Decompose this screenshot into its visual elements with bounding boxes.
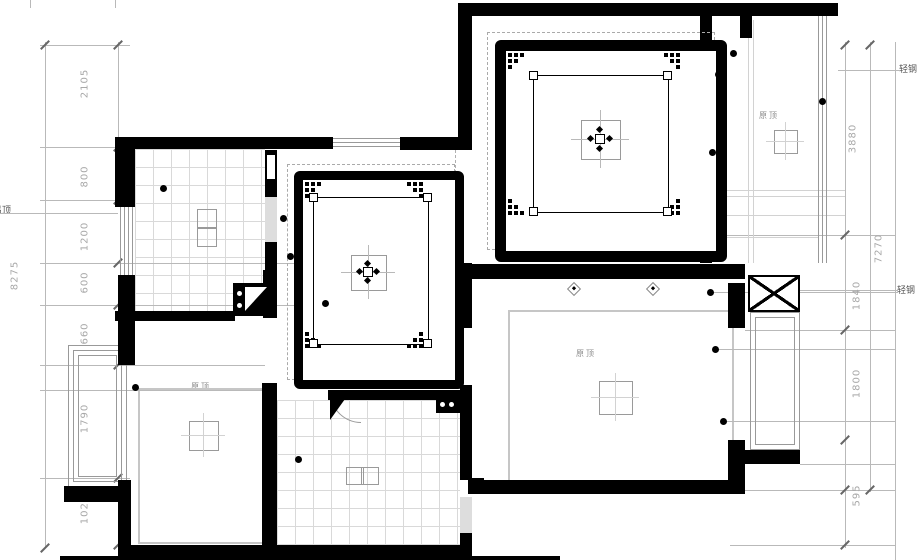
dimension-line bbox=[45, 42, 46, 548]
ceiling-lamp-icon bbox=[599, 381, 633, 415]
vent-fixture-icon bbox=[197, 209, 217, 229]
note-light-steel-bottom: 轻钢 bbox=[897, 283, 915, 296]
door-opening bbox=[460, 497, 472, 533]
dimension-label: 3880 bbox=[848, 117, 859, 161]
downlight-dot-icon bbox=[287, 253, 294, 260]
door-hinge-dot bbox=[237, 291, 242, 296]
wall-segment bbox=[262, 383, 277, 545]
wall-segment bbox=[458, 3, 838, 16]
closet-line bbox=[753, 20, 754, 263]
switch-dot bbox=[449, 402, 454, 407]
ceiling-lamp-icon bbox=[774, 130, 798, 154]
dining-ceiling-corner-ornament bbox=[419, 182, 423, 186]
diamond-light-icon bbox=[646, 282, 660, 296]
dimension-extension-line bbox=[40, 305, 325, 306]
dimension-extension-line bbox=[712, 235, 895, 236]
ceiling-lamp-icon-cross bbox=[615, 373, 616, 421]
living-ceiling-corner-ornament bbox=[676, 53, 680, 57]
wall-segment bbox=[64, 486, 118, 502]
wall-niche bbox=[267, 155, 275, 179]
downlight-dot-icon bbox=[712, 346, 719, 353]
door-opening bbox=[265, 197, 277, 242]
window-kitchen-left bbox=[120, 202, 134, 275]
downlight-dot-icon bbox=[132, 384, 139, 391]
dimension-label: 1200 bbox=[80, 215, 91, 259]
cropped-bottom-text-bar bbox=[60, 556, 560, 560]
ceiling-lamp-icon-cross bbox=[203, 413, 204, 457]
downlight-dot-icon bbox=[707, 289, 714, 296]
downlight-dot-icon bbox=[160, 185, 167, 192]
dimension-label: 800 bbox=[80, 155, 91, 199]
downlight-dot-icon bbox=[295, 456, 302, 463]
dimension-label: 7270 bbox=[874, 227, 885, 271]
door-leaf-wedge bbox=[245, 287, 267, 311]
living-ceiling-frame-corner-box bbox=[529, 71, 538, 80]
top-edge-tick bbox=[30, 0, 31, 8]
dining-ceiling-corner-ornament bbox=[305, 182, 309, 186]
vent-fixture-icon bbox=[197, 227, 217, 247]
downlight-dot-icon bbox=[715, 71, 722, 78]
wall-segment bbox=[460, 385, 472, 480]
downlight-dot-icon bbox=[819, 98, 826, 105]
downlight-dot-icon bbox=[730, 50, 737, 57]
wall-segment bbox=[745, 450, 800, 464]
window-right-balcony bbox=[818, 16, 829, 263]
switch-dot bbox=[440, 402, 445, 407]
dimension-label-total: 8275 bbox=[10, 254, 21, 298]
shaft-x-icon bbox=[748, 275, 800, 312]
closet-line bbox=[748, 20, 749, 263]
dimension-label: 595 bbox=[852, 474, 863, 518]
dimension-line bbox=[870, 42, 871, 492]
living-ceiling-corner-ornament bbox=[508, 53, 512, 57]
ceiling-lamp-icon-cross bbox=[785, 122, 786, 160]
dimension-extension-line bbox=[40, 263, 295, 264]
ornate-ceiling-lamp-icon-center bbox=[363, 267, 373, 277]
room-label-top-right-room: 原顶 bbox=[759, 110, 779, 121]
wall-segment bbox=[460, 264, 745, 279]
dimension-line bbox=[118, 42, 119, 138]
dimension-label: 2105 bbox=[80, 62, 91, 106]
vent-fixture-icon bbox=[361, 467, 379, 485]
downlight-dot-icon bbox=[709, 149, 716, 156]
living-ceiling-frame-corner-box bbox=[663, 207, 672, 216]
wall-segment bbox=[728, 283, 745, 328]
dimension-label: 1800 bbox=[852, 362, 863, 406]
wall-segment bbox=[468, 480, 730, 494]
balcony-right-inner bbox=[755, 317, 795, 445]
dimension-label: 600 bbox=[80, 261, 91, 305]
dining-ceiling-frame-corner-box bbox=[423, 339, 432, 348]
dimension-extension-line bbox=[838, 70, 900, 71]
bay-window-left-inner2 bbox=[78, 355, 117, 477]
dimension-line bbox=[895, 42, 896, 560]
dining-ceiling-frame-corner-box bbox=[309, 193, 318, 202]
living-ceiling-frame-corner-box bbox=[663, 71, 672, 80]
note-suspended-ceiling: 吊顶 bbox=[0, 203, 11, 216]
ornate-ceiling-lamp-icon-center bbox=[595, 134, 605, 144]
downlight-dot-icon bbox=[322, 300, 329, 307]
door-leaf bbox=[330, 392, 350, 420]
dimension-extension-line bbox=[800, 290, 898, 291]
window-top bbox=[333, 138, 400, 148]
dining-ceiling-frame-corner-box bbox=[309, 339, 318, 348]
downlight-dot-icon bbox=[280, 215, 287, 222]
wardrobe-line bbox=[712, 237, 818, 238]
wall-segment bbox=[458, 3, 472, 150]
wall-segment bbox=[115, 311, 235, 321]
dimension-extension-line bbox=[800, 464, 895, 465]
dimension-extension-line bbox=[0, 213, 118, 214]
dimension-extension-line bbox=[730, 545, 895, 546]
wall-segment bbox=[115, 137, 333, 149]
living-ceiling-corner-ornament bbox=[676, 211, 680, 215]
living-ceiling-corner-ornament bbox=[508, 211, 512, 215]
wall-segment bbox=[740, 16, 752, 38]
downlight-dot-icon bbox=[720, 418, 727, 425]
note-light-steel-top: 轻钢 bbox=[899, 62, 917, 75]
bedroom-left-ceiling-border bbox=[138, 388, 272, 544]
living-ceiling-frame-corner-box bbox=[529, 207, 538, 216]
dimension-extension-line bbox=[715, 349, 895, 350]
ceiling-plan-canvas: 原顶 原顶 原顶 原顶 原顶 原顶 原顶 吊顶 轻钢 轻钢 8275 21058… bbox=[0, 0, 920, 560]
top-edge-tick bbox=[115, 0, 116, 8]
wall-segment bbox=[728, 440, 745, 494]
dining-ceiling-frame-corner-box bbox=[423, 193, 432, 202]
dimension-line bbox=[845, 42, 846, 548]
door-hinge-dot bbox=[237, 303, 242, 308]
diamond-light-icon bbox=[567, 282, 581, 296]
ceiling-lamp-icon bbox=[189, 421, 219, 451]
dimension-label: 1840 bbox=[852, 274, 863, 318]
